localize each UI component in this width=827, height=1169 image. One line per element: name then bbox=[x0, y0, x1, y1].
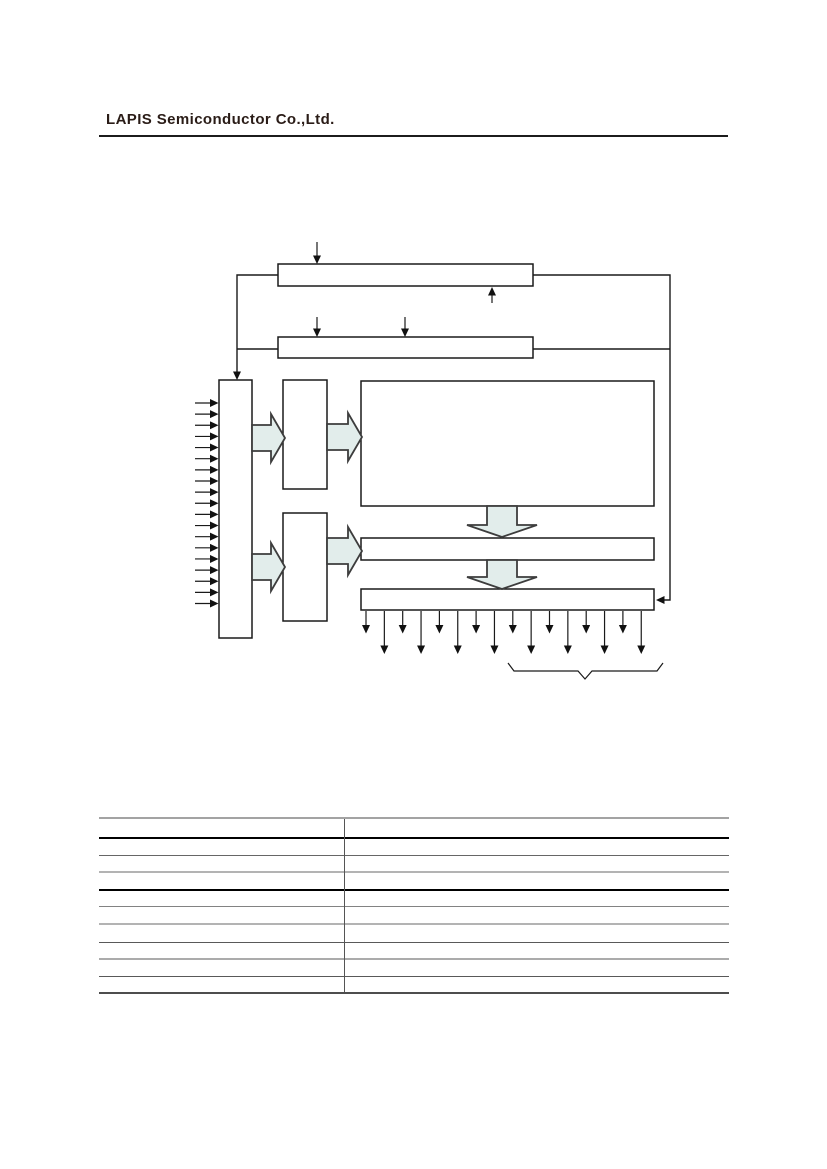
lower-small-box bbox=[283, 513, 327, 621]
block-arrow-right-2 bbox=[327, 413, 362, 461]
table-column-divider bbox=[344, 819, 345, 992]
block-arrow-right-4 bbox=[327, 527, 362, 575]
table-row bbox=[99, 839, 729, 856]
block-diagram bbox=[0, 0, 827, 700]
table-row bbox=[99, 856, 729, 873]
large-center-box bbox=[361, 381, 654, 506]
table-row bbox=[99, 943, 729, 960]
table-row bbox=[99, 819, 729, 839]
table-cell bbox=[344, 960, 729, 976]
spec-table bbox=[99, 817, 729, 992]
table-row bbox=[99, 960, 729, 977]
middle-bar-box bbox=[361, 538, 654, 560]
table-row bbox=[99, 907, 729, 925]
table-cell bbox=[99, 907, 344, 923]
output-group-brace bbox=[508, 663, 663, 679]
table-row bbox=[99, 925, 729, 943]
table-cell bbox=[344, 856, 729, 871]
table-cell bbox=[99, 891, 344, 906]
table-row bbox=[99, 873, 729, 891]
table-cell bbox=[99, 819, 344, 837]
table-cell bbox=[99, 856, 344, 871]
table-cell bbox=[99, 873, 344, 889]
block-arrow-right-3 bbox=[252, 543, 285, 591]
table-cell bbox=[344, 907, 729, 923]
block-arrow-down-2 bbox=[467, 560, 537, 589]
wire-left-top bbox=[237, 275, 278, 373]
table-cell bbox=[344, 977, 729, 992]
second-wide-box bbox=[278, 337, 533, 358]
bottom-bar-box bbox=[361, 589, 654, 610]
top-wide-box bbox=[278, 264, 533, 286]
table-cell bbox=[344, 873, 729, 889]
table-cell bbox=[99, 960, 344, 976]
table-cell bbox=[344, 943, 729, 958]
table-cell bbox=[344, 891, 729, 906]
table-row bbox=[99, 891, 729, 907]
left-tall-box bbox=[219, 380, 252, 638]
table-row bbox=[99, 977, 729, 994]
table-cell bbox=[99, 977, 344, 992]
block-arrow-down-1 bbox=[467, 506, 537, 537]
block-arrow-right-1 bbox=[252, 414, 285, 462]
table-cell bbox=[99, 925, 344, 942]
input-pin-arrows bbox=[195, 403, 212, 604]
table-cell bbox=[99, 839, 344, 855]
upper-small-box bbox=[283, 380, 327, 489]
table-cell bbox=[344, 819, 729, 837]
output-pin-arrows bbox=[366, 611, 641, 647]
table-cell bbox=[344, 925, 729, 942]
table-cell bbox=[344, 839, 729, 855]
table-cell bbox=[99, 943, 344, 958]
